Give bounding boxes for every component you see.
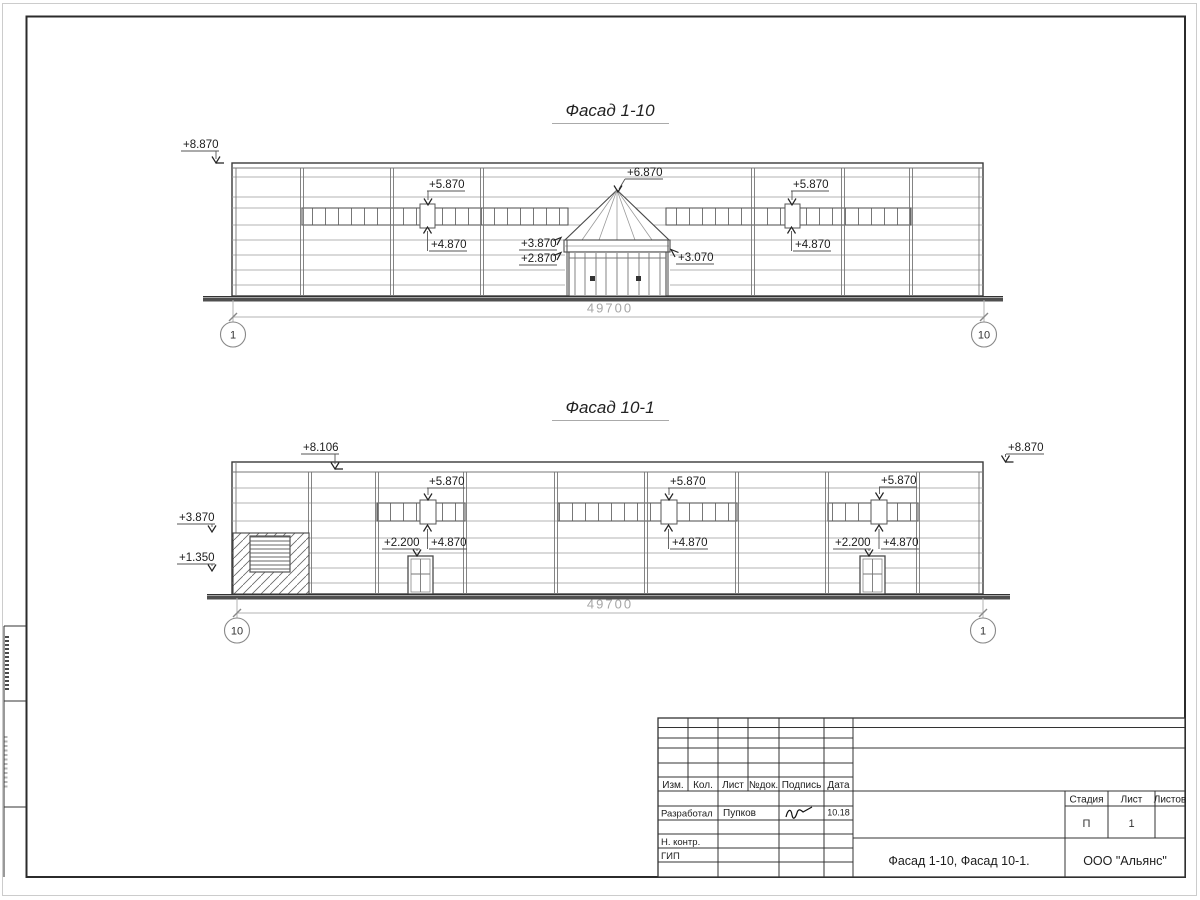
elevation-mark: +8.870 xyxy=(181,139,224,163)
column-header: Подпись xyxy=(782,780,822,791)
axis-markers: 1 10 xyxy=(221,322,997,347)
title-block: Изм. Кол. Лист №док. Подпись Дата Разраб… xyxy=(658,718,1186,877)
svg-text:+3.870: +3.870 xyxy=(179,512,215,524)
role-label: ГИП xyxy=(661,851,680,862)
axis-number: 10 xyxy=(231,626,243,638)
elevation-mark: +2.870 xyxy=(519,253,561,266)
stage-value: П xyxy=(1083,818,1091,830)
axis-number: 10 xyxy=(978,330,990,342)
marked-window xyxy=(420,500,436,524)
sheet-header: Лист xyxy=(1121,795,1143,806)
dimension-line: 49700 xyxy=(229,300,988,322)
elevation-mark: +1.350 xyxy=(177,552,216,571)
svg-text:+2.870: +2.870 xyxy=(521,253,557,265)
date: 10.18 xyxy=(827,808,850,818)
marked-window xyxy=(871,500,887,524)
facade-1-10: Фасад 1-10 xyxy=(181,101,1003,347)
svg-text:+4.870: +4.870 xyxy=(883,537,919,549)
marked-window xyxy=(420,204,435,228)
column-header: Кол. xyxy=(693,780,713,791)
dimension-text: 49700 xyxy=(587,301,633,316)
dimension-line: 49700 xyxy=(233,597,987,619)
left-margin-table xyxy=(4,626,27,877)
elevation-mark: +3.870 xyxy=(519,238,561,251)
hatched-block xyxy=(233,533,309,594)
svg-text:+8.870: +8.870 xyxy=(1008,442,1044,454)
svg-text:+4.870: +4.870 xyxy=(431,537,467,549)
facade-10-1: Фасад 10-1 xyxy=(177,398,1044,643)
sheet-value: 1 xyxy=(1128,818,1134,830)
svg-text:+4.870: +4.870 xyxy=(431,239,467,251)
svg-text:+5.870: +5.870 xyxy=(429,476,465,488)
door xyxy=(408,556,433,594)
svg-text:+5.870: +5.870 xyxy=(670,476,706,488)
svg-text:+8.106: +8.106 xyxy=(303,442,339,454)
facade-1-10-building xyxy=(203,163,1003,300)
axis-number: 1 xyxy=(980,626,986,638)
svg-text:+5.870: +5.870 xyxy=(429,179,465,191)
column-header: №док. xyxy=(749,780,778,791)
svg-text:+4.870: +4.870 xyxy=(672,537,708,549)
column-header: Дата xyxy=(827,780,850,791)
sheets-header: Листов xyxy=(1154,795,1187,806)
svg-text:+3.070: +3.070 xyxy=(678,252,714,264)
company-name: ООО "Альянс" xyxy=(1083,854,1167,868)
svg-text:+6.870: +6.870 xyxy=(627,167,663,179)
elevation-mark: +8.870 xyxy=(1002,442,1045,462)
svg-text:+3.870: +3.870 xyxy=(521,238,557,250)
dimension-text: 49700 xyxy=(587,597,633,612)
drawing-sheet: Фасад 1-10 xyxy=(0,0,1200,900)
role-label: Н. контр. xyxy=(661,837,700,848)
column-header: Изм. xyxy=(662,780,683,791)
column-header: Лист xyxy=(722,780,744,791)
facade-title: Фасад 1-10 xyxy=(565,101,655,120)
svg-text:+1.350: +1.350 xyxy=(179,552,215,564)
svg-text:+2.200: +2.200 xyxy=(835,537,871,549)
svg-text:+2.200: +2.200 xyxy=(384,537,420,549)
elevation-mark: +3.070 xyxy=(671,250,714,265)
stage-header: Стадия xyxy=(1069,795,1103,806)
axis-markers: 10 1 xyxy=(225,618,996,643)
door xyxy=(860,556,885,594)
facade-title: Фасад 10-1 xyxy=(565,398,654,417)
marked-window xyxy=(661,500,677,524)
marked-window xyxy=(785,204,800,228)
role-label: Разработал xyxy=(661,809,713,820)
sheet-svg: Фасад 1-10 xyxy=(0,0,1200,900)
entrance-doors xyxy=(569,252,666,296)
axis-number: 1 xyxy=(230,330,236,342)
svg-text:+5.870: +5.870 xyxy=(881,475,917,487)
document-title: Фасад 1-10, Фасад 10-1. xyxy=(888,854,1029,868)
svg-text:+4.870: +4.870 xyxy=(795,239,831,251)
person-name: Пупков xyxy=(723,808,756,819)
elevation-mark: +3.870 xyxy=(177,512,216,532)
svg-text:+8.870: +8.870 xyxy=(183,139,219,151)
door-handle xyxy=(590,276,595,281)
door-handle xyxy=(636,276,641,281)
svg-text:+5.870: +5.870 xyxy=(793,179,829,191)
